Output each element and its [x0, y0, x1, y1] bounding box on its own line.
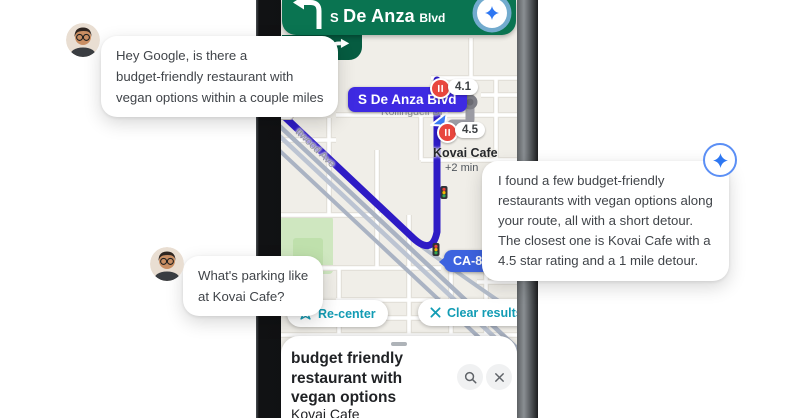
- search-button[interactable]: [457, 364, 483, 390]
- user-chat-bubble: Hey Google, is there a budget-friendly r…: [101, 36, 338, 117]
- navigation-banner[interactable]: 0 ft S De Anza Blvd: [282, 0, 516, 35]
- left-turn-arrow-icon: [291, 0, 327, 29]
- assistant-button[interactable]: [477, 0, 507, 28]
- gemini-sparkle-icon: [712, 152, 729, 169]
- chat-line: restaurants with vegan options along: [498, 191, 713, 211]
- chat-line: your route, all with a short detour.: [498, 211, 713, 231]
- assistant-chat-bubble: I found a few budget-friendly restaurant…: [482, 161, 729, 281]
- user-avatar: [66, 23, 100, 57]
- maneuver-street: S De Anza Blvd: [330, 6, 445, 27]
- fork-knife-icon: [436, 84, 445, 93]
- chat-line: What's parking like: [198, 265, 308, 286]
- street-prefix: S: [330, 10, 339, 25]
- assistant-avatar: [703, 143, 737, 177]
- user-chat-bubble: What's parking like at Kovai Cafe?: [183, 256, 323, 316]
- drag-handle[interactable]: [391, 342, 407, 346]
- search-bottom-sheet[interactable]: budget friendly restaurant with vegan op…: [281, 336, 517, 418]
- search-icon: [464, 371, 477, 384]
- result-item-name[interactable]: Kovai Cafe: [291, 406, 359, 418]
- recenter-label: Re-center: [318, 307, 376, 321]
- close-icon: [494, 372, 505, 383]
- marketing-canvas: 85 ttwood Ave Rollingdell Dr S De Anza B…: [0, 0, 800, 418]
- chat-line: I found a few budget-friendly: [498, 171, 713, 191]
- assistant-sparkle-icon: [484, 5, 500, 21]
- street-suffix: Blvd: [419, 11, 445, 25]
- chat-line: budget-friendly restaurant with: [116, 66, 323, 87]
- traffic-light-icon: [433, 243, 440, 256]
- traffic-light-icon: [441, 186, 448, 199]
- rating-badge[interactable]: 4.5: [455, 122, 485, 138]
- search-query-text: budget friendly restaurant with vegan op…: [291, 349, 403, 408]
- poi-eta-label: +2 min: [445, 162, 478, 174]
- street-name: De Anza: [343, 6, 415, 26]
- chat-line: 4.5 star rating and a 1 mile detour.: [498, 251, 713, 271]
- clear-results-button[interactable]: Clear results: [418, 299, 517, 326]
- chat-line: Hey Google, is there a: [116, 45, 323, 66]
- poi-name-label[interactable]: Kovai Cafe: [433, 146, 498, 160]
- user-avatar: [150, 247, 184, 281]
- rating-badge[interactable]: 4.1: [448, 79, 478, 95]
- chat-line: at Kovai Cafe?: [198, 286, 308, 307]
- fork-knife-icon: [443, 128, 452, 137]
- maneuver-distance: 0 ft: [334, 0, 351, 2]
- chat-line: vegan options within a couple miles: [116, 87, 323, 108]
- clear-results-label: Clear results: [447, 306, 517, 320]
- chat-line: The closest one is Kovai Cafe with a: [498, 231, 713, 251]
- close-search-button[interactable]: [486, 364, 512, 390]
- clear-icon: [430, 307, 441, 318]
